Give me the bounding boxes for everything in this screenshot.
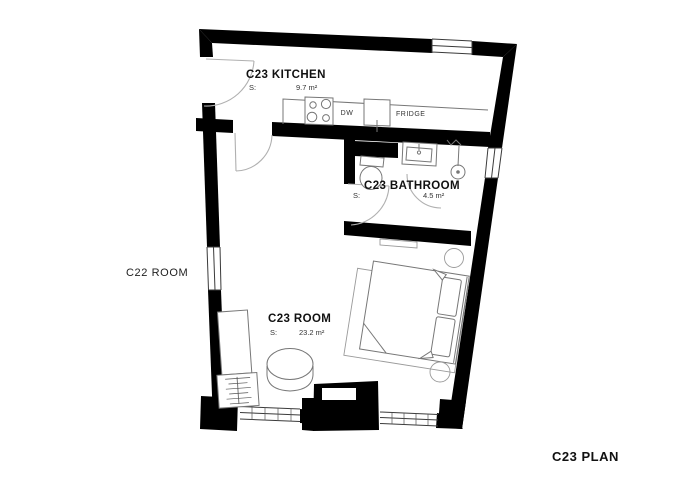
kitchen-area-label: S: <box>249 83 256 92</box>
chimney <box>302 381 379 431</box>
entrance-door <box>204 59 254 106</box>
chimney-left-nub <box>302 398 314 431</box>
shower-icon <box>447 140 465 179</box>
stool <box>445 249 464 268</box>
room-label: C23 ROOM <box>268 313 331 325</box>
window-top <box>432 39 472 55</box>
dishwasher-label: DW <box>341 110 354 117</box>
top-wall-left <box>199 29 432 53</box>
floor-plan-drawing: C23 KITCHEN S: 9.7 m² C23 BATHROOM S: 4.… <box>0 0 700 500</box>
kitchen-door-leaf <box>235 133 236 171</box>
room-area-value: 23.2 m² <box>299 328 325 337</box>
floor-plan-page: C23 KITCHEN S: 9.7 m² C23 BATHROOM S: 4.… <box>0 0 700 500</box>
stove-icon <box>305 97 333 125</box>
kitchen-label-group: C23 KITCHEN S: 9.7 m² <box>246 69 326 92</box>
plan-title: C23 PLAN <box>552 449 619 464</box>
window-right <box>485 148 502 178</box>
kitchen-south-wall-left <box>196 118 233 133</box>
kitchen-door-arc <box>236 135 272 171</box>
bathroom-label: C23 BATHROOM <box>364 180 460 192</box>
room-area-label: S: <box>270 328 277 337</box>
entrance-door-leaf <box>206 59 254 61</box>
room-label-group: C23 ROOM S: 23.2 m² <box>268 313 331 337</box>
bed-icon <box>360 260 470 364</box>
window-bottom-left <box>240 407 300 422</box>
bathroom-area-value: 4.5 m² <box>423 191 445 200</box>
bathroom-shaft <box>354 141 398 158</box>
bathroom-area-label: S: <box>353 191 360 200</box>
fridge-label: FRIDGE <box>396 111 425 118</box>
window-bottom-right <box>380 412 438 426</box>
pouf-icon <box>267 349 313 392</box>
window-left <box>207 247 221 290</box>
sink-icon <box>402 142 437 166</box>
bottom-right-corner <box>438 399 466 429</box>
kitchen-room-door <box>235 133 272 171</box>
bathroom-west-wall <box>344 137 355 184</box>
adjacent-room-label: C22 ROOM <box>126 267 188 279</box>
bathroom-label-group: C23 BATHROOM S: 4.5 m² <box>353 180 460 200</box>
kitchen-area-value: 9.7 m² <box>296 83 318 92</box>
right-wall-upper <box>488 44 517 148</box>
chimney-inset <box>322 388 356 400</box>
entrance-door-arc <box>204 61 254 106</box>
kitchen-label: C23 KITCHEN <box>246 69 326 81</box>
